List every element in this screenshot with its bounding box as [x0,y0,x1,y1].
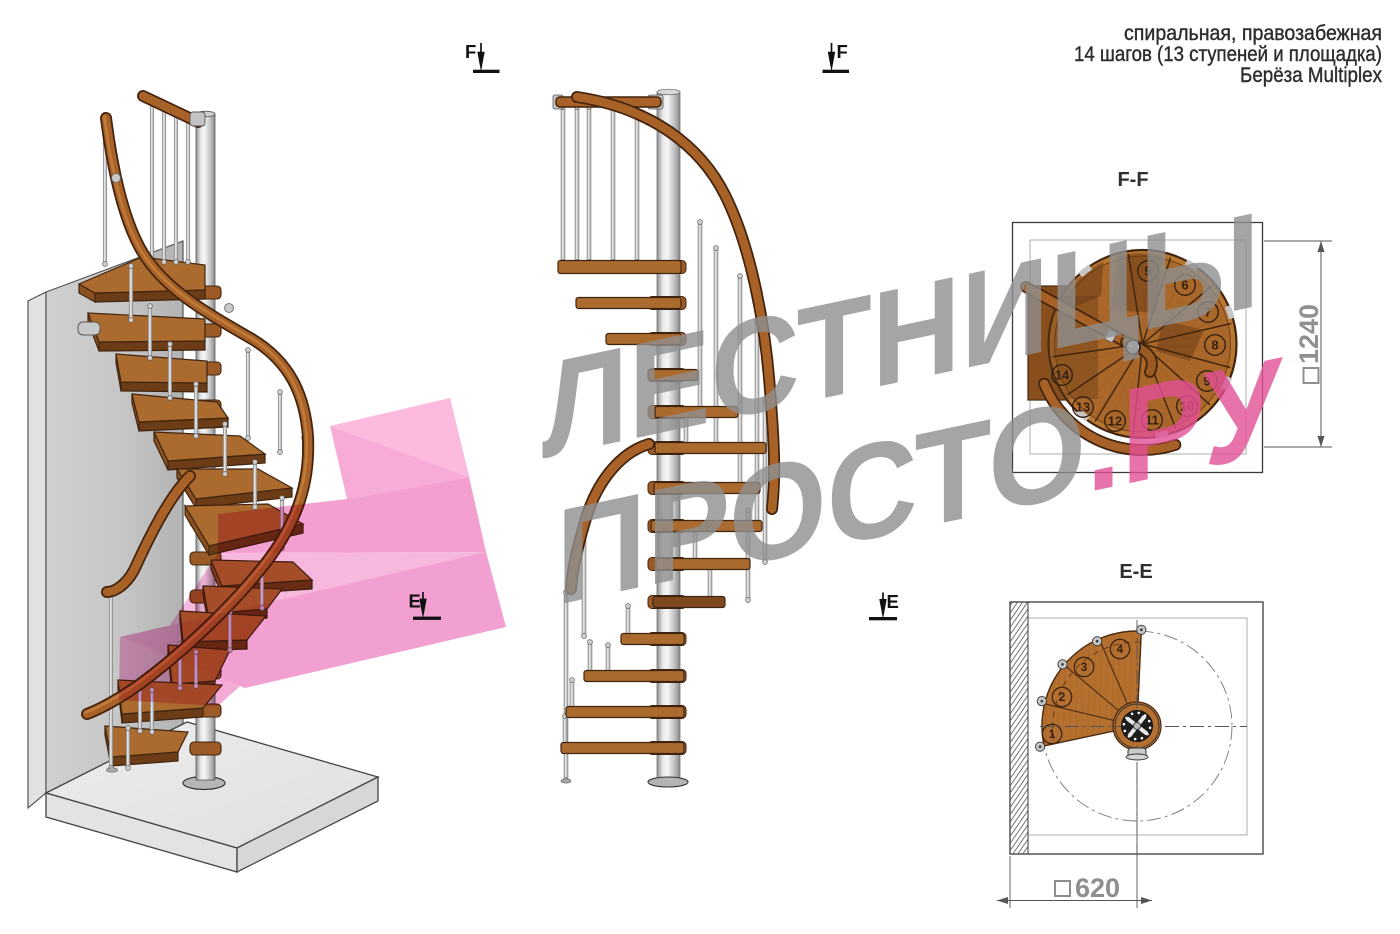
svg-text:1240: 1240 [1294,304,1324,364]
svg-text:1: 1 [1049,727,1056,741]
svg-text:E: E [887,591,899,612]
svg-text:F: F [465,41,476,62]
svg-text:620: 620 [1075,873,1120,903]
svg-text:Берёза Multiplex: Берёза Multiplex [1240,63,1382,87]
svg-text:F: F [837,41,848,62]
svg-text:E-E: E-E [1119,561,1152,583]
svg-text:4: 4 [1117,642,1124,656]
svg-text:F-F: F-F [1117,169,1148,191]
svg-text:2: 2 [1059,690,1066,704]
svg-text:3: 3 [1081,660,1088,674]
svg-text:E: E [409,591,421,612]
